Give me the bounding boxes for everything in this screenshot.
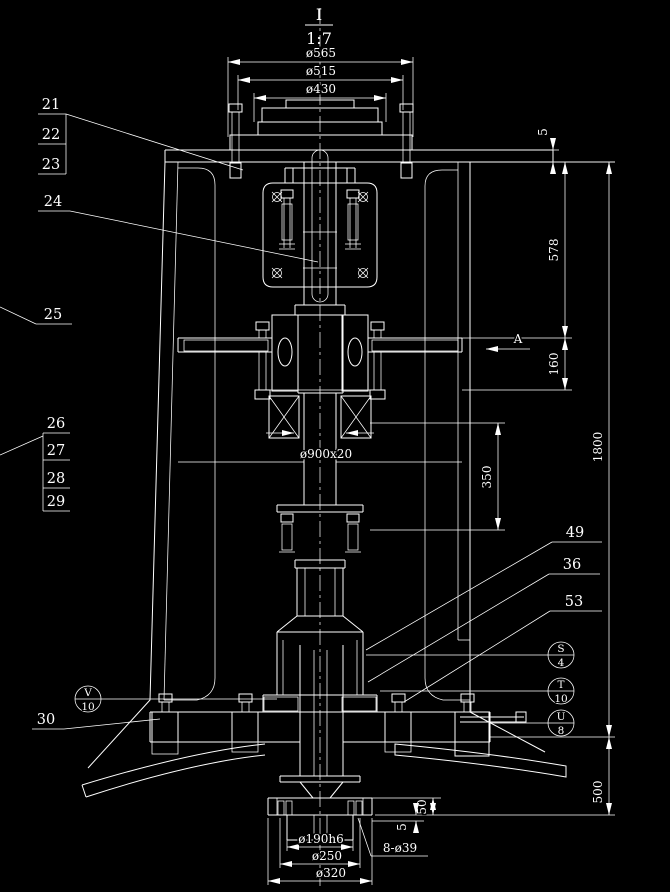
dim-900x20: ø900x20	[266, 433, 374, 461]
svg-text:U: U	[557, 711, 566, 723]
svg-text:23: 23	[42, 157, 60, 173]
callout-49: 49	[366, 525, 602, 650]
spring-washer	[230, 163, 241, 178]
spring-washer	[401, 163, 412, 178]
svg-text:1800: 1800	[591, 432, 605, 463]
anchor-bolt	[152, 712, 178, 742]
callout-26-29-leader	[0, 433, 43, 511]
callout-28: 28	[43, 471, 70, 488]
anchor-bolt	[385, 712, 411, 742]
callout-23: 23	[38, 157, 66, 174]
section-label: A	[513, 332, 523, 346]
symbol-t10: T 10	[380, 678, 574, 705]
svg-text:ø565: ø565	[306, 46, 336, 60]
housing-body	[88, 162, 545, 768]
svg-text:S: S	[557, 643, 564, 655]
svg-text:25: 25	[44, 307, 62, 323]
support-block	[455, 712, 489, 756]
svg-text:27: 27	[47, 443, 65, 459]
svg-text:26: 26	[47, 416, 65, 432]
callout-25: 25	[0, 307, 72, 324]
svg-text:ø900x20: ø900x20	[300, 447, 352, 461]
svg-text:8-ø39: 8-ø39	[383, 841, 417, 855]
svg-text:ø250: ø250	[312, 849, 342, 863]
svg-text:V: V	[83, 687, 92, 699]
svg-text:36: 36	[563, 557, 581, 573]
svg-text:21: 21	[42, 97, 60, 113]
tank-cone	[82, 744, 566, 797]
callout-27: 27	[43, 443, 70, 460]
note-8-39: 8-ø39	[358, 818, 428, 856]
callout-36: 36	[368, 557, 600, 682]
svg-text:500: 500	[591, 781, 605, 804]
adjusting-rod	[460, 717, 524, 722]
section-arrow-a: A	[486, 332, 530, 349]
roller	[278, 338, 292, 366]
top-flange-plate	[165, 150, 553, 162]
drawing-canvas: I 1:7 ø565 ø515 ø430 5 578 160 1800	[0, 0, 670, 892]
svg-text:5: 5	[536, 128, 550, 136]
dim-50: 50	[365, 798, 441, 815]
svg-text:350: 350	[480, 466, 494, 489]
svg-text:53: 53	[565, 594, 583, 610]
svg-text:4: 4	[558, 657, 565, 669]
svg-text:5: 5	[395, 823, 409, 831]
svg-text:ø515: ø515	[306, 64, 336, 78]
svg-text:10: 10	[81, 701, 94, 713]
svg-text:49: 49	[566, 525, 584, 541]
svg-text:ø430: ø430	[306, 82, 336, 96]
svg-text:T: T	[557, 679, 564, 691]
callout-21-23-leader	[66, 114, 243, 174]
view-label: I	[316, 5, 322, 24]
corner-bolt	[358, 268, 368, 278]
symbol-u8: U 8	[490, 710, 574, 737]
roller	[348, 338, 362, 366]
svg-text:30: 30	[37, 712, 55, 728]
svg-text:50: 50	[415, 799, 429, 814]
svg-text:578: 578	[547, 239, 561, 262]
svg-text:28: 28	[47, 471, 65, 487]
motor-mount	[229, 100, 413, 183]
dim-350: 350	[370, 423, 505, 530]
callouts-right: 49 36 53	[366, 525, 602, 702]
callout-30: 30	[32, 712, 160, 729]
svg-text:ø320: ø320	[316, 866, 346, 880]
callouts-left: 21 22 23 24 25 26 27 28 29 30	[0, 97, 318, 729]
svg-text:22: 22	[42, 127, 60, 143]
dim-5-bottom: 5	[372, 806, 424, 832]
svg-text:29: 29	[47, 494, 65, 510]
callout-21: 21	[38, 97, 66, 114]
stud-spring	[348, 204, 358, 240]
callout-22: 22	[38, 127, 66, 144]
view-title: I 1:7	[305, 5, 333, 48]
corner-bolt	[272, 268, 282, 278]
assembly-section-drawing: I 1:7 ø565 ø515 ø430 5 578 160 1800	[0, 0, 670, 892]
svg-text:24: 24	[44, 194, 62, 210]
stud-spring	[282, 204, 292, 240]
svg-text:160: 160	[547, 353, 561, 376]
svg-text:ø190h6: ø190h6	[298, 832, 344, 846]
callout-29: 29	[43, 494, 70, 511]
symbol-v10: V 10	[75, 686, 277, 713]
dim-plate-thickness: 5	[536, 128, 615, 174]
callout-24: 24	[38, 194, 318, 262]
callout-26: 26	[43, 416, 70, 433]
svg-text:8: 8	[558, 725, 565, 737]
svg-text:10: 10	[554, 693, 567, 705]
anchor-bolt	[232, 712, 258, 742]
dim-578: 578	[462, 162, 572, 338]
